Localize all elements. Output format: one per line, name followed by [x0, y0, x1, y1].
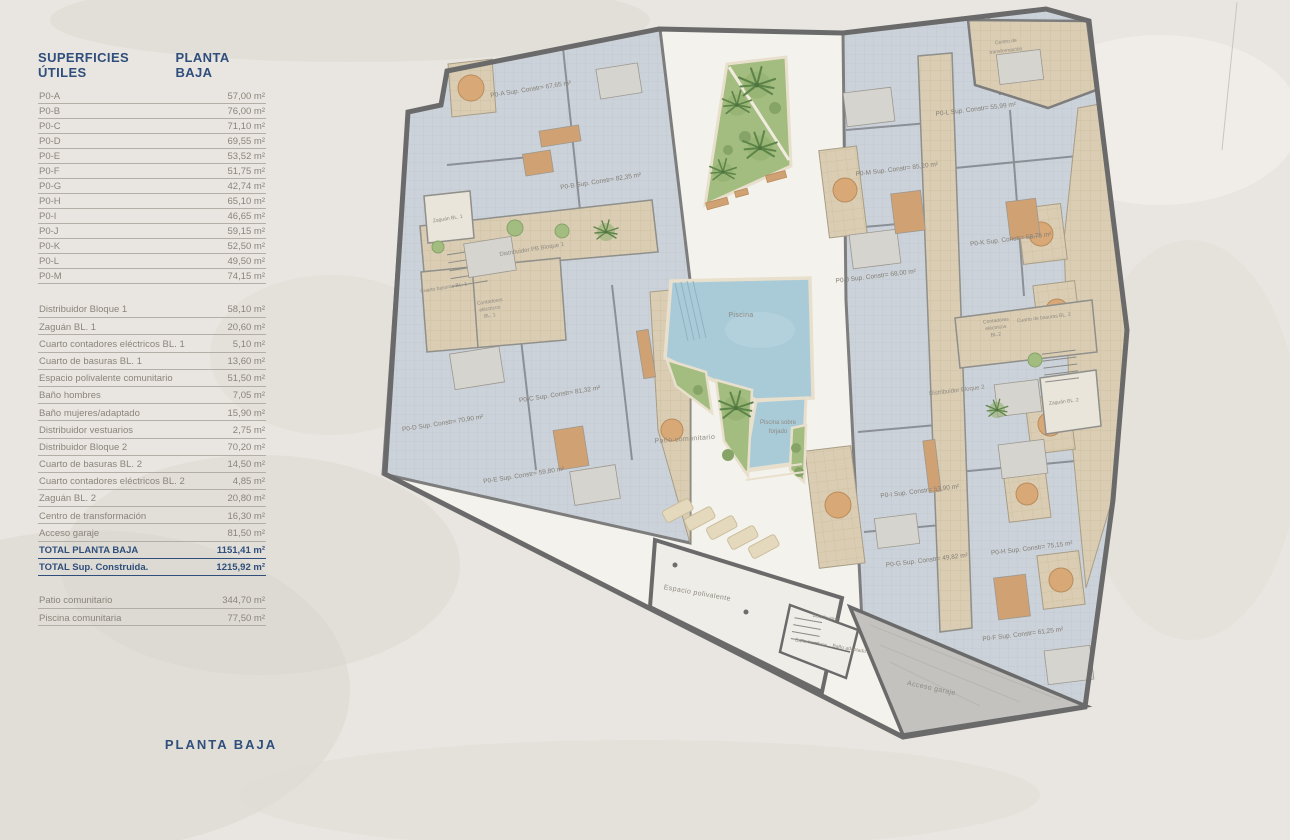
table-row: P0-H65,10 m²	[38, 194, 266, 209]
table-row: P0-I46,65 m²	[38, 209, 266, 224]
row-value: 42,74 m²	[228, 181, 266, 192]
row-value: 20,80 m²	[228, 493, 266, 504]
row-value: 58,10 m²	[228, 304, 266, 315]
row-label: Espacio polivalente comunitario	[39, 373, 173, 384]
row-label: P0-I	[39, 211, 56, 222]
row-value: 1215,92 m²	[216, 562, 265, 573]
row-label: P0-E	[39, 151, 60, 162]
row-label: Distribuidor vestuarios	[39, 425, 133, 436]
apartment-area-table: P0-A57,00 m² P0-B76,00 m² P0-C71,10 m² P…	[38, 89, 266, 284]
row-value: 71,10 m²	[228, 121, 266, 132]
row-value: 1151,41 m²	[217, 545, 265, 556]
table-row: Baño mujeres/adaptado15,90 m²	[38, 404, 266, 421]
panel-header: SUPERFICIES ÚTILES PLANTA BAJA	[38, 50, 266, 80]
table-row: Distribuidor Bloque 158,10 m²	[38, 301, 266, 318]
row-value: 70,20 m²	[228, 442, 266, 453]
row-value: 57,00 m²	[228, 91, 266, 102]
table-row: P0-A57,00 m²	[38, 89, 266, 104]
table-row: P0-J59,15 m²	[38, 224, 266, 239]
row-label: TOTAL Sup. Construida.	[39, 562, 148, 573]
row-label: Cuarto contadores eléctricos BL. 2	[39, 476, 185, 487]
terrace-table	[458, 75, 484, 101]
row-label: Centro de transformación	[39, 511, 146, 522]
row-value: 7,05 m²	[233, 390, 265, 401]
row-label: P0-F	[39, 166, 60, 177]
piscina-forjado-label: Piscina sobre	[760, 420, 797, 426]
panel-title: SUPERFICIES ÚTILES	[38, 50, 175, 80]
row-label: P0-G	[39, 181, 61, 192]
row-value: 344,70 m²	[222, 595, 265, 606]
total-row: TOTAL Sup. Construida.1215,92 m²	[38, 559, 266, 576]
outdoor-areas-table: Patio comunitario344,70 m² Piscina comun…	[38, 592, 266, 626]
row-label: Zaguán BL. 2	[39, 493, 96, 504]
table-row: P0-F51,75 m²	[38, 164, 266, 179]
table-row: Espacio polivalente comunitario51,50 m²	[38, 370, 266, 387]
row-value: 74,15 m²	[228, 271, 266, 282]
table-row: Patio comunitario344,70 m²	[38, 592, 266, 609]
row-label: Cuarto contadores eléctricos BL. 1	[39, 339, 185, 350]
row-value: 77,50 m²	[228, 613, 266, 624]
row-value: 2,75 m²	[233, 425, 265, 436]
row-label: P0-M	[39, 271, 62, 282]
table-row: P0-C71,10 m²	[38, 119, 266, 134]
row-label: Distribuidor Bloque 1	[39, 304, 127, 315]
piscina-label: Piscina	[728, 312, 753, 319]
table-row: Zaguán BL. 220,80 m²	[38, 490, 266, 507]
row-label: P0-C	[39, 121, 61, 132]
row-value: 52,50 m²	[228, 241, 266, 252]
row-label: Baño mujeres/adaptado	[39, 408, 140, 419]
table-row: P0-D69,55 m²	[38, 134, 266, 149]
row-value: 15,90 m²	[228, 408, 266, 419]
row-value: 4,85 m²	[233, 476, 265, 487]
row-label: Cuarto de basuras BL. 1	[39, 356, 142, 367]
row-value: 5,10 m²	[233, 339, 265, 350]
row-value: 81,50 m²	[228, 528, 266, 539]
total-row: TOTAL PLANTA BAJA1151,41 m²	[38, 542, 266, 559]
table-row: Zaguán BL. 120,60 m²	[38, 318, 266, 335]
row-value: 59,15 m²	[228, 226, 266, 237]
table-row: P0-K52,50 m²	[38, 239, 266, 254]
row-value: 51,75 m²	[228, 166, 266, 177]
row-value: 14,50 m²	[228, 459, 266, 470]
row-label: Zaguán BL. 1	[39, 322, 96, 333]
row-value: 65,10 m²	[228, 196, 266, 207]
table-row: Baño hombres7,05 m²	[38, 387, 266, 404]
areas-panel: SUPERFICIES ÚTILES PLANTA BAJA P0-A57,00…	[38, 50, 266, 626]
row-label: Acceso garaje	[39, 528, 99, 539]
contadores2-label-3: BL.2	[990, 331, 1001, 338]
row-label: P0-D	[39, 136, 61, 147]
row-value: 49,50 m²	[228, 256, 266, 267]
row-label: P0-L	[39, 256, 59, 267]
table-row: Piscina comunitaria77,50 m²	[38, 609, 266, 626]
row-label: P0-A	[39, 91, 60, 102]
piscina-forjado-label-2: forjado	[769, 429, 788, 435]
table-row: P0-E53,52 m²	[38, 149, 266, 164]
table-row: Distribuidor Bloque 270,20 m²	[38, 439, 266, 456]
row-label: TOTAL PLANTA BAJA	[39, 545, 138, 556]
row-value: 76,00 m²	[228, 106, 266, 117]
row-label: P0-H	[39, 196, 61, 207]
row-value: 51,50 m²	[228, 373, 266, 384]
table-row: Acceso garaje81,50 m²	[38, 524, 266, 541]
table-row: Cuarto contadores eléctricos BL. 24,85 m…	[38, 473, 266, 490]
table-row: P0-M74,15 m²	[38, 269, 266, 284]
row-value: 46,65 m²	[228, 211, 266, 222]
row-label: Baño hombres	[39, 390, 101, 401]
row-label: P0-K	[39, 241, 60, 252]
table-row: Cuarto de basuras BL. 214,50 m²	[38, 456, 266, 473]
row-label: P0-J	[39, 226, 59, 237]
table-row: P0-L49,50 m²	[38, 254, 266, 269]
row-label: Piscina comunitaria	[39, 613, 121, 624]
row-label: P0-B	[39, 106, 60, 117]
row-label: Cuarto de basuras BL. 2	[39, 459, 142, 470]
table-row: Cuarto de basuras BL. 113,60 m²	[38, 353, 266, 370]
row-value: 13,60 m²	[228, 356, 266, 367]
table-row: Distribuidor vestuarios2,75 m²	[38, 421, 266, 438]
common-rooms-table: Distribuidor Bloque 158,10 m² Zaguán BL.…	[38, 301, 266, 576]
table-row: Centro de transformación16,30 m²	[38, 507, 266, 524]
row-value: 20,60 m²	[228, 322, 266, 333]
row-value: 69,55 m²	[228, 136, 266, 147]
floor-plan-sheet: P0-A Sup. Constr= 67,65 m² P0-B Sup. Con…	[0, 0, 1290, 840]
panel-subtitle: PLANTA BAJA	[175, 50, 266, 80]
table-row: Cuarto contadores eléctricos BL. 15,10 m…	[38, 335, 266, 352]
sheet-title: PLANTA BAJA	[140, 737, 302, 752]
row-value: 16,30 m²	[228, 511, 266, 522]
row-value: 53,52 m²	[228, 151, 266, 162]
row-label: Patio comunitario	[39, 595, 112, 606]
table-row: P0-B76,00 m²	[38, 104, 266, 119]
row-label: Distribuidor Bloque 2	[39, 442, 127, 453]
table-row: P0-G42,74 m²	[38, 179, 266, 194]
